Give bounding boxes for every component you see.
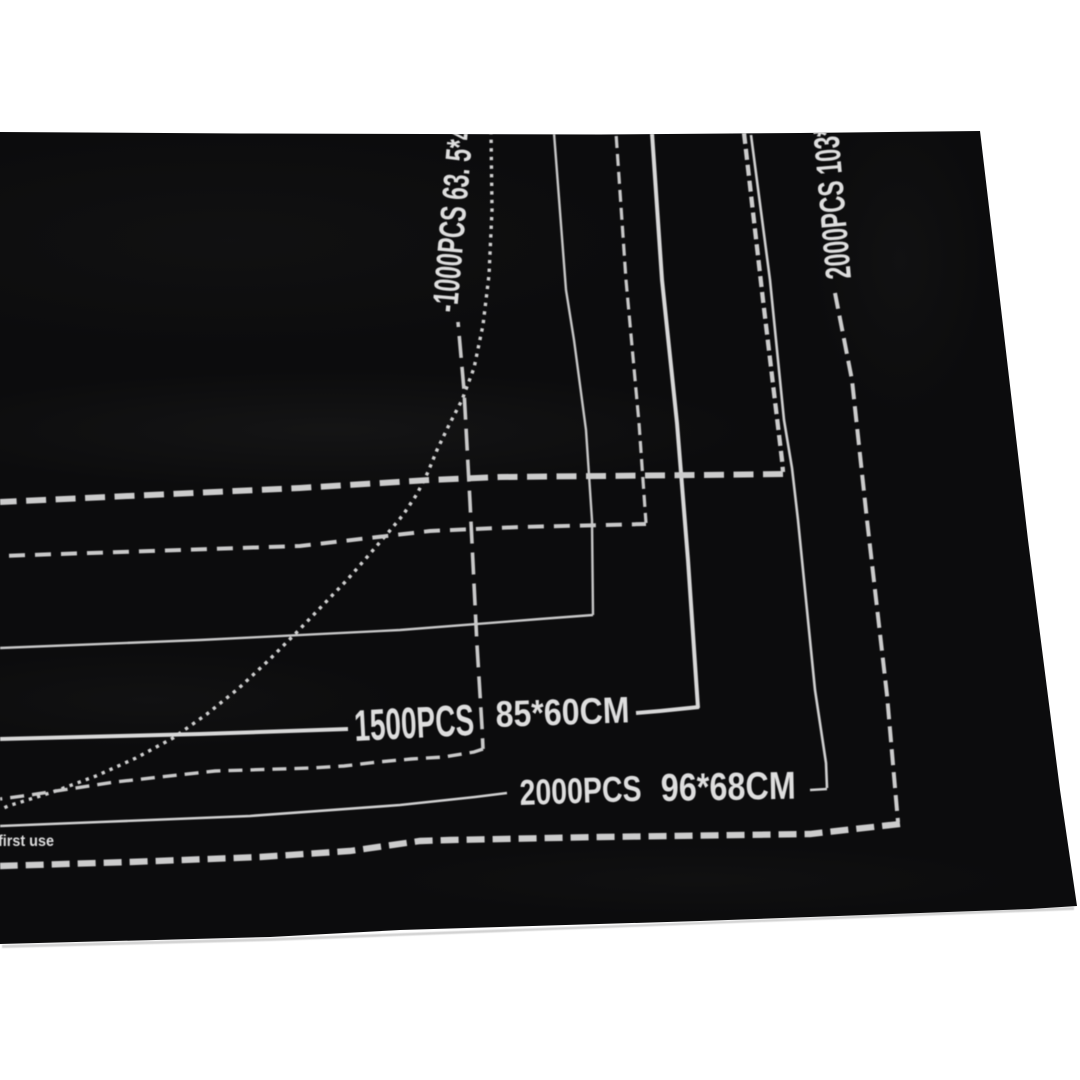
svg-text:2000PCS: 2000PCS <box>519 768 642 813</box>
svg-text:85*60CM: 85*60CM <box>495 689 630 735</box>
svg-text:first use: first use <box>0 833 54 850</box>
svg-text:1500PCS: 1500PCS <box>353 696 475 751</box>
svg-text:96*68CM: 96*68CM <box>660 765 796 810</box>
